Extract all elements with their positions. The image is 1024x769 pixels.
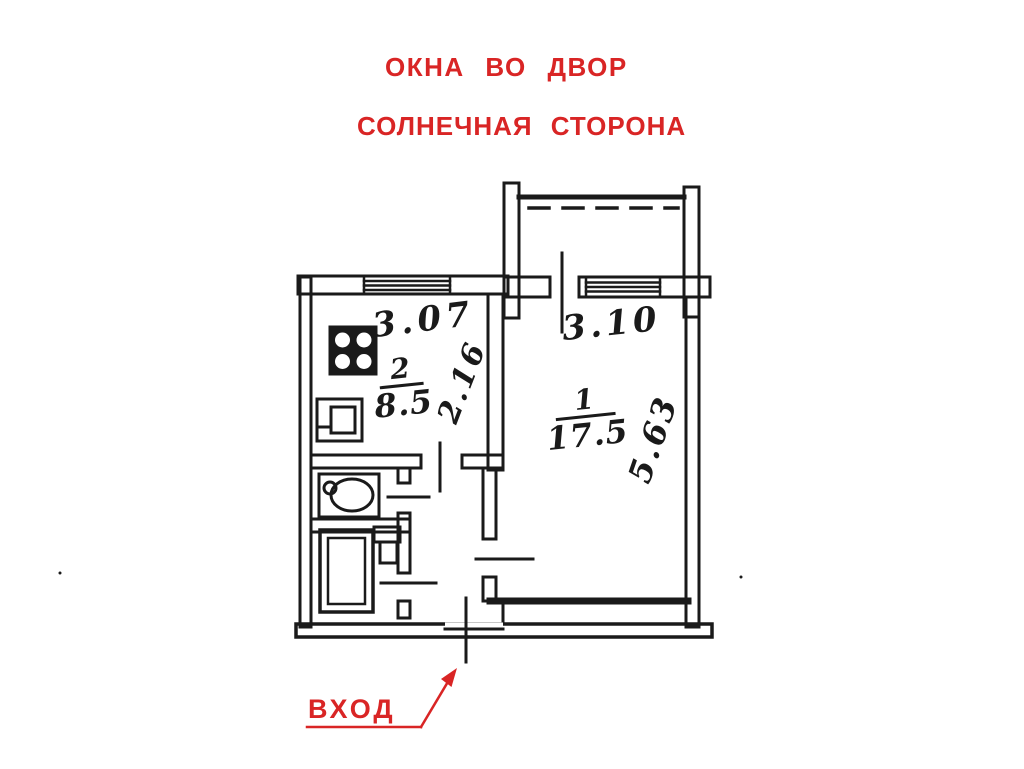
washbasin-icon (319, 474, 379, 517)
living-room-window (586, 278, 660, 296)
sunny-side-note: СОЛНЕЧНАЯ СТОРОНА (357, 111, 686, 142)
windows-to-yard-note: ОКНА ВО ДВОР (385, 52, 628, 83)
living-room-area: 17.5 (545, 415, 630, 457)
kitchen-room-area: 8.5 (373, 385, 435, 425)
bathtub-icon (320, 530, 373, 612)
page: ОКНА ВО ДВОР СОЛНЕЧНАЯ СТОРОНА ВХОД 3.07… (0, 0, 1024, 769)
living-room-label: 1 17.5 (541, 382, 632, 457)
entrance-label: ВХОД (308, 694, 396, 725)
kitchen-room-label: 2 8.5 (363, 351, 442, 425)
entrance-door-mark (445, 598, 503, 662)
kitchen-sink-icon (317, 399, 362, 441)
kitchen-window (364, 277, 450, 293)
